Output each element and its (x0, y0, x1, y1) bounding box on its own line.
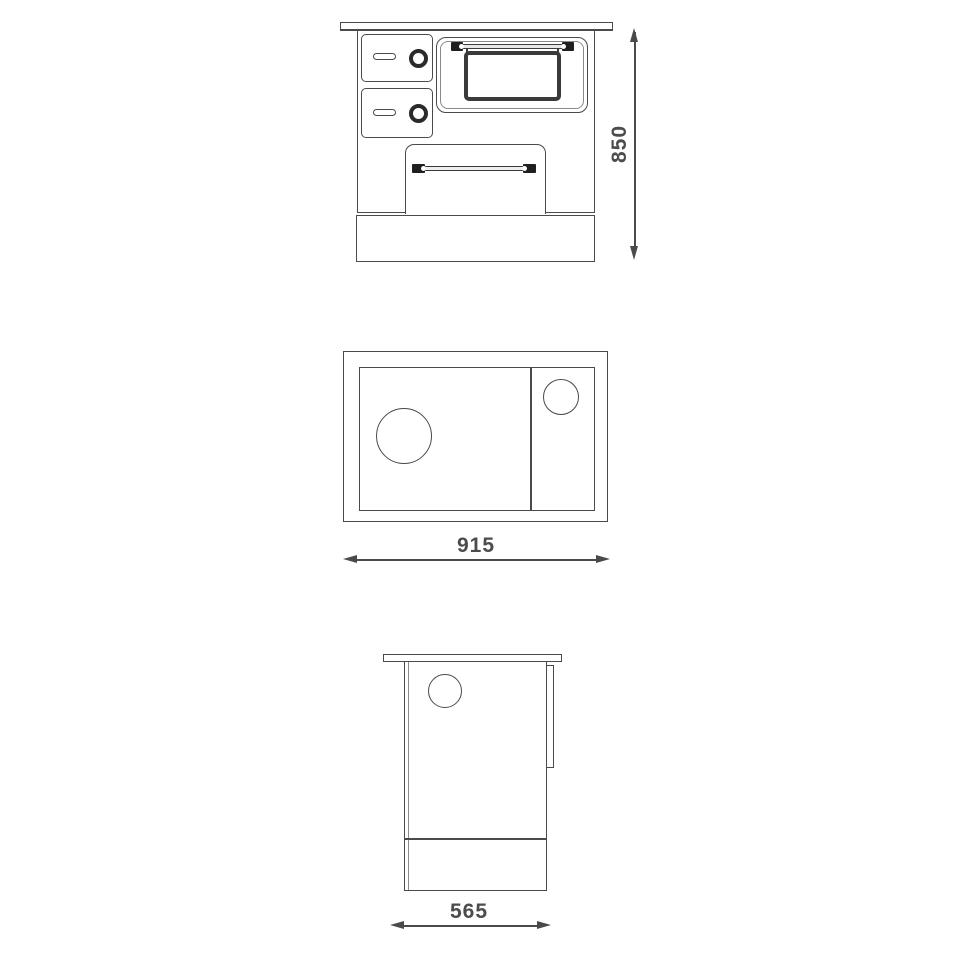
depth-dimension-value: 565 (450, 900, 488, 924)
depth-dimension-arrow-left (390, 921, 404, 929)
side-elevation-view: 565 (0, 0, 960, 960)
plinth-line-side (405, 838, 546, 840)
flue-outlet-circle (428, 674, 462, 708)
stove-body-side (404, 661, 547, 891)
depth-dimension-line (402, 925, 538, 927)
side-back-panel-line (408, 662, 409, 890)
stove-technical-drawing: 850 915 565 (0, 0, 960, 960)
door-handle-side-profile (546, 665, 554, 768)
depth-dimension-arrow-right (537, 921, 551, 929)
